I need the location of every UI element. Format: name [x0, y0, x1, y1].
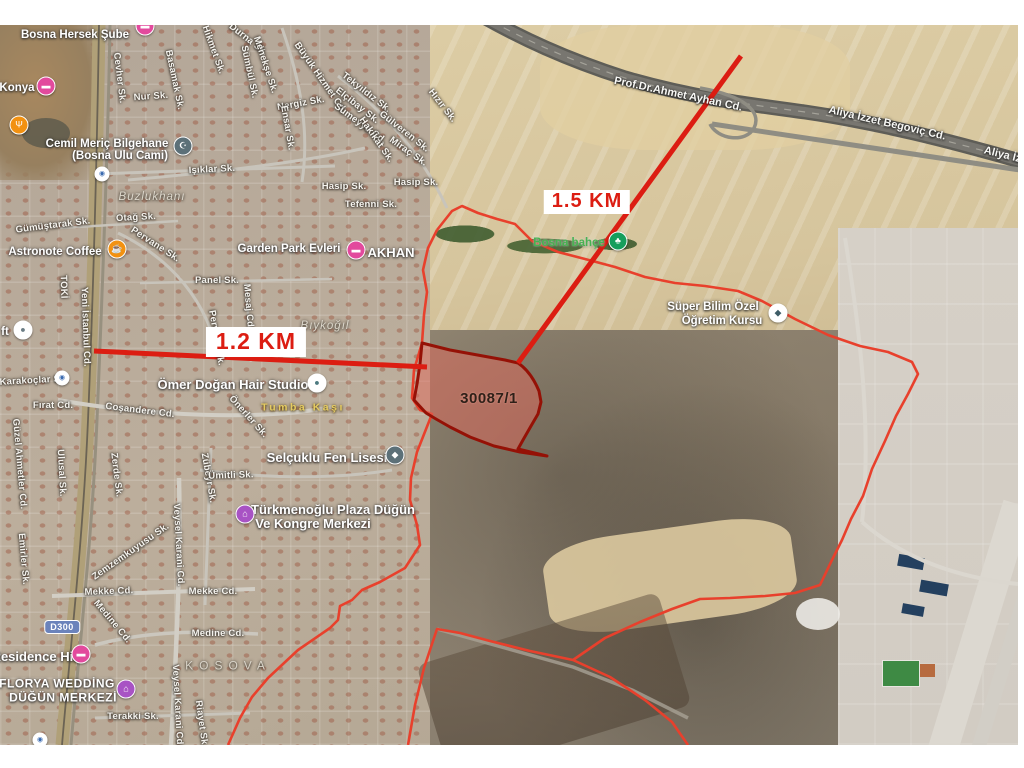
poi-label-bosna-bahce[interactable]: Bosna bahçe [533, 237, 605, 249]
street-label: Nur Sk. [133, 91, 168, 103]
poi-label-super-bilim-ozel[interactable]: Süper Bilim Özel [667, 301, 758, 313]
map-screenshot: 30087/1Bosna Hersek ŞubeKonyaCemil Meriç… [0, 0, 1024, 768]
street-label: Güzel Ahmetler Cd. [10, 418, 28, 509]
plaza-pin-icon[interactable]: ⌂ [236, 505, 255, 524]
poi-label-omer-dogan-hair-studio[interactable]: Ömer Doğan Hair Studio [158, 378, 309, 392]
pin-glyph: ☪ [179, 142, 187, 151]
transit-stop-icon[interactable]: ◉ [95, 167, 110, 182]
parcel-number-label: 30087/1 [460, 391, 518, 407]
pin-glyph: ● [20, 326, 25, 335]
road-label-prof-dr-ahmet-ayhan: Prof.Dr.Ahmet Ayhan Cd. [613, 76, 743, 114]
poi-label-ft[interactable]: ft [1, 326, 9, 338]
pin-glyph: Ψ [15, 121, 23, 130]
street-label: Mekke Cd. [84, 586, 133, 598]
street-label: Hasip Sk. [322, 182, 367, 192]
road-label-aliya-izzet-edge: Aliya İzze [983, 145, 1024, 168]
poi-label-ogretim-kursu[interactable]: Öğretim Kursu [682, 315, 763, 327]
street-label: Cevher Sk. [111, 52, 127, 104]
poi-label-konya[interactable]: Konya [0, 82, 35, 94]
street-label: Panel Sk. [195, 276, 239, 286]
poi-label-selcuklu-fen-lisesi[interactable]: Selçuklu Fen Lisesi [267, 451, 388, 465]
street-label: Yeni İstanbul Cd. [79, 287, 92, 367]
street-label: TOKİ [58, 275, 69, 299]
pin-glyph: ◆ [775, 309, 782, 318]
pin-glyph: ◆ [392, 451, 399, 460]
poi-label-residence-hill[interactable]: Residence Hill [0, 650, 80, 664]
street-label: Gümüştarak Sk. [15, 216, 91, 235]
road-label-aliya-izzet-begovic: Aliya İzzet Begoviç Cd. [827, 105, 946, 143]
loft-pin-icon[interactable]: ● [14, 321, 33, 340]
transit-stop-icon[interactable]: ◉ [55, 371, 70, 386]
poi-label-garden-park-evleri[interactable]: Garden Park Evleri [238, 243, 341, 255]
street-label: Hasip Sk. [394, 178, 439, 188]
street-label: Hızır Sk. [426, 87, 458, 124]
street-label: Ulusal Sk. [55, 449, 67, 497]
poi-label-astronote-coffee[interactable]: Astronote Coffee [8, 246, 101, 258]
pin-glyph: ● [314, 379, 319, 388]
label-layer: 30087/1Bosna Hersek ŞubeKonyaCemil Meriç… [0, 0, 1024, 768]
street-label: Tefenni Sk. [345, 200, 397, 210]
pin-glyph: ▬ [42, 82, 51, 91]
street-label: Zemzemkuyusu Sk. [91, 522, 172, 583]
pin-glyph: ◉ [99, 171, 105, 178]
poi-label-turkmenoglu-plaza[interactable]: Türkmenoğlu Plaza Düğün [251, 503, 415, 517]
street-label: Ensar Sk. [278, 105, 296, 151]
poi-label-kongre-merkezi[interactable]: Ve Kongre Merkezi [255, 517, 371, 531]
pin-glyph: ▬ [141, 22, 150, 31]
akhan-pin-icon[interactable]: ▬ [347, 241, 366, 260]
street-label: Pervane Sk. [129, 226, 181, 265]
street-label: Işıklar Sk. [188, 164, 235, 176]
pin-glyph: ▬ [77, 650, 86, 659]
district-label-biykogil: Bıykoğıl [301, 320, 350, 332]
transit-stop-icon[interactable]: ◉ [33, 733, 48, 748]
street-label: Ümitli Sk. [208, 470, 254, 482]
street-label: Coşandere Cd. [105, 402, 175, 420]
street-label: Veysel Karani Cd. [171, 503, 185, 587]
wedding-venue-pin-icon[interactable]: ⌂ [117, 680, 136, 699]
hair-studio-pin-icon[interactable]: ● [308, 374, 327, 393]
street-label: Terakki Sk. [107, 712, 159, 722]
poi-label-akhan[interactable]: AKHAN [368, 246, 415, 260]
park-pin-icon[interactable]: ♣ [609, 232, 628, 251]
street-label: Fırat Cd. [33, 401, 73, 411]
district-label-buzlukhani: Buzlukhanı [119, 191, 186, 203]
pin-glyph: ⌂ [123, 685, 128, 694]
school-pin-icon[interactable]: ◆ [386, 446, 405, 465]
distance-label-1-2-km: 1.2 KM [206, 327, 306, 357]
poi-label-bosna-ulu-cami[interactable]: (Bosna Ulu Cami) [72, 150, 168, 162]
street-label: Zerde Sk. [108, 452, 123, 497]
area-label-tumba-kasi: Tumba Kaşı [261, 402, 345, 413]
restaurant-pin-icon[interactable]: Ψ [10, 116, 29, 135]
residence-pin-icon[interactable]: ▬ [72, 645, 91, 664]
pin-glyph: ☕ [111, 245, 122, 254]
poi-label-bosna-hersek-sube[interactable]: Bosna Hersek Şube [21, 29, 129, 41]
road-shield-d300: D300 [44, 620, 80, 634]
street-label: Basamak Sk. [163, 49, 185, 111]
distance-label-1-5-km: 1.5 KM [544, 190, 630, 214]
street-label: Otağ Sk. [116, 212, 157, 224]
pin-glyph: ⌂ [242, 510, 247, 519]
street-label: Medine Cd. [192, 629, 245, 639]
satellite-map-canvas[interactable]: 30087/1Bosna Hersek ŞubeKonyaCemil Meriç… [0, 0, 1024, 768]
poi-label-cemil-meric-bilgehane[interactable]: Cemil Meriç Bilgehane [46, 138, 169, 150]
poi-label-dugun-merkezi[interactable]: DÜĞÜN MERKEZİ [9, 692, 117, 705]
street-label: Hikmet Sk. [200, 25, 227, 76]
street-label: Veysel Karani Cd. [170, 664, 184, 748]
mosque-pin-icon[interactable]: ☪ [174, 137, 193, 156]
pin-glyph: ▬ [352, 246, 361, 255]
poi-label-florya-wedding[interactable]: FLORYA WEDDİNG [0, 678, 115, 691]
hotel-pin-icon[interactable]: ▬ [37, 77, 56, 96]
street-label: Emirler Sk. [16, 533, 30, 586]
street-label: Mekke Cd. [189, 587, 238, 597]
pin-glyph: ◉ [59, 375, 65, 382]
bank-branch-pin-icon[interactable]: ▬ [136, 17, 155, 36]
coffee-pin-icon[interactable]: ☕ [108, 240, 127, 259]
pin-glyph: ◉ [37, 737, 43, 744]
education-pin-icon[interactable]: ◆ [769, 304, 788, 323]
pin-glyph: ♣ [615, 237, 621, 246]
district-label-kosova: KOSOVA [185, 660, 271, 673]
street-label: Riayet Sk. [193, 700, 209, 748]
street-label: Mesaj Cd. [241, 284, 255, 331]
street-label: Medine Cd. [91, 599, 132, 646]
